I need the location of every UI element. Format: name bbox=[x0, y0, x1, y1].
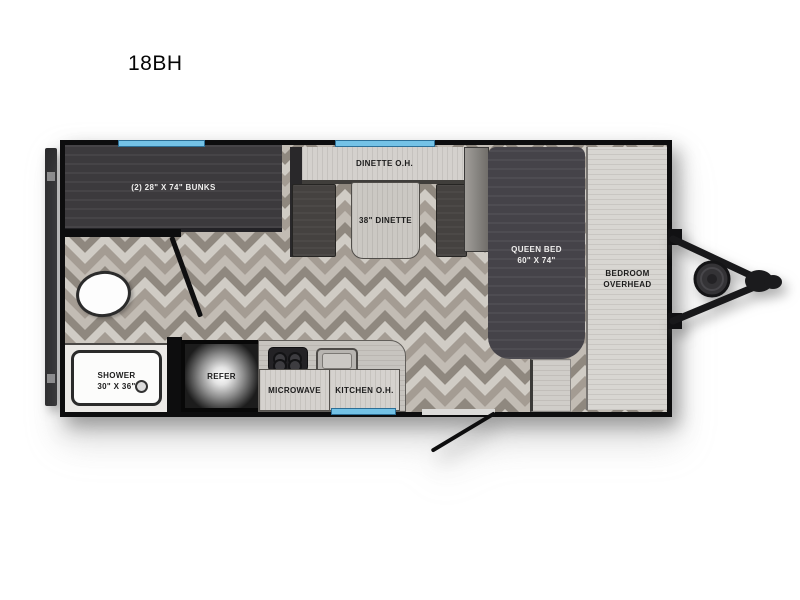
bed-step bbox=[530, 359, 571, 412]
trailer-body: (2) 28" X 74" BUNKS SHOWER 30" X 36" REF… bbox=[60, 140, 672, 417]
dinette-bench-left bbox=[292, 184, 336, 257]
dinette-overhead-label: DINETTE O.H. bbox=[356, 158, 413, 169]
kitchen-overhead-cabinet: KITCHEN O.H. bbox=[329, 369, 400, 411]
window-bunks bbox=[118, 140, 205, 147]
refer-label: REFER bbox=[181, 371, 262, 382]
hitch-coupler-tip bbox=[764, 275, 782, 289]
refrigerator: REFER bbox=[181, 340, 262, 412]
kitchen-counter: MICROWAVE KITCHEN O.H. bbox=[258, 340, 406, 412]
bumper-bracket bbox=[47, 374, 55, 383]
wardrobe-panel bbox=[464, 147, 489, 252]
bedroom-overhead-label-line1: BEDROOM bbox=[605, 268, 649, 279]
microwave-label: MICROWAVE bbox=[268, 385, 321, 396]
bedroom-overhead-label-line2: OVERHEAD bbox=[603, 279, 651, 290]
shower-label-line1: SHOWER bbox=[74, 370, 159, 381]
shower: SHOWER 30" X 36" bbox=[65, 343, 168, 412]
hitch-assembly bbox=[660, 205, 790, 355]
bunk-beds: (2) 28" X 74" BUNKS bbox=[65, 145, 282, 232]
bunks-label: (2) 28" X 74" BUNKS bbox=[65, 182, 282, 193]
window-kitchen bbox=[331, 408, 396, 415]
floorplan-canvas: 18BH (2) 28" X 74 bbox=[0, 0, 800, 600]
entry-door bbox=[431, 411, 496, 453]
rear-bumper bbox=[45, 148, 57, 406]
entry-door-opening bbox=[422, 409, 495, 415]
bumper-bracket bbox=[47, 172, 55, 181]
shower-pan: SHOWER 30" X 36" bbox=[71, 350, 162, 406]
queen-bed: QUEEN BED 60" X 74" bbox=[488, 147, 585, 359]
kitchen-overhead-label: KITCHEN O.H. bbox=[335, 385, 393, 396]
plan-title: 18BH bbox=[128, 52, 183, 76]
sink-basin bbox=[322, 353, 352, 369]
queen-bed-label-line1: QUEEN BED bbox=[488, 244, 585, 255]
propane-tank-cap bbox=[707, 274, 717, 284]
dinette-table: 38" DINETTE bbox=[351, 182, 420, 259]
shower-drain bbox=[135, 380, 148, 393]
dinette-label: 38" DINETTE bbox=[359, 215, 412, 226]
dinette-overhead-cabinet: DINETTE O.H. bbox=[302, 147, 467, 184]
dinette-bench-right bbox=[436, 184, 467, 257]
bedroom-overhead-cabinet: BEDROOM OVERHEAD bbox=[586, 147, 667, 410]
window-dinette bbox=[335, 140, 435, 147]
queen-bed-label-line2: 60" X 74" bbox=[488, 255, 585, 266]
bath-kitchen-wall bbox=[167, 337, 182, 412]
microwave-cabinet: MICROWAVE bbox=[259, 369, 330, 411]
bathroom-wall bbox=[65, 229, 181, 237]
